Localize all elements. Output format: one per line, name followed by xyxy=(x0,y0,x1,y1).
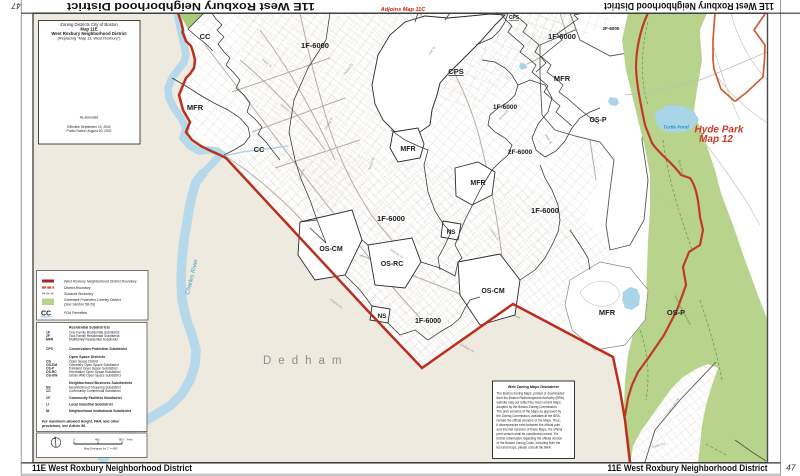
svg-text:MFR: MFR xyxy=(187,103,204,112)
svg-text:Web Zoning Maps Disclaimer: Web Zoning Maps Disclaimer xyxy=(508,385,560,389)
svg-text:and Internet versions of these: and Internet versions of these Maps, the… xyxy=(497,428,563,432)
svg-text:CC: CC xyxy=(254,145,265,154)
svg-text:District Boundary: District Boundary xyxy=(64,286,91,290)
svg-text:remain the official versions o: remain the official versions of the Maps… xyxy=(497,419,561,423)
svg-text:MFR: MFR xyxy=(599,308,616,317)
svg-text:2F-6000: 2F-6000 xyxy=(508,149,533,156)
svg-text:of the Boston Zoning Code, inc: of the Boston Zoning Code, including bot… xyxy=(497,441,561,445)
svg-text:website may not reflect the mo: website may not reflect the most current… xyxy=(497,401,562,405)
svg-text:Multifamily Residential Subdis: Multifamily Residential Subdistrict xyxy=(69,338,118,342)
svg-text:Public Notice: August 20, 2002: Public Notice: August 20, 2002 xyxy=(67,129,112,133)
svg-text:1F-6000: 1F-6000 xyxy=(531,206,559,215)
svg-text:OS-RC: OS-RC xyxy=(381,261,404,268)
svg-text:the Zoning Commission, availab: the Zoning Commission, available at the … xyxy=(497,414,561,418)
svg-text:800: 800 xyxy=(119,438,124,442)
svg-text:Community Facilities Subdistri: Community Facilities Subdistrict xyxy=(69,396,123,400)
svg-text:MFR: MFR xyxy=(46,338,54,342)
svg-text:Neighborhood Institutional Sub: Neighborhood Institutional Subdistrict xyxy=(69,409,132,413)
svg-text:NS: NS xyxy=(446,229,456,236)
svg-text:Neighborhood Business Subdistr: Neighborhood Business Subdistricts xyxy=(69,381,132,385)
svg-text:1F-6000: 1F-6000 xyxy=(548,32,576,41)
svg-text:NS: NS xyxy=(377,313,387,320)
svg-text:47: 47 xyxy=(11,1,21,11)
svg-text:OS-UW: OS-UW xyxy=(46,374,58,378)
svg-text:Adjoins Map 11C: Adjoins Map 11C xyxy=(380,7,427,13)
svg-text:CC: CC xyxy=(200,32,211,41)
svg-text:LI: LI xyxy=(46,402,49,406)
svg-text:from the Boston Redevelopment: from the Boston Redevelopment Authority … xyxy=(497,396,565,400)
svg-text:CPS: CPS xyxy=(448,67,463,76)
svg-text:OS-CM: OS-CM xyxy=(481,288,505,295)
svg-text:11E West Roxbury Neighborhood: 11E West Roxbury Neighborhood District xyxy=(32,463,192,473)
svg-text:NI: NI xyxy=(46,409,49,413)
svg-text:11E West Roxbury Neighborhood: 11E West Roxbury Neighborhood District xyxy=(604,0,774,12)
svg-text:47: 47 xyxy=(786,463,796,473)
svg-text:1F-6000: 1F-6000 xyxy=(301,41,329,50)
svg-text:11E West Roxbury Neighborhood: 11E West Roxbury Neighborhood District xyxy=(608,463,768,473)
svg-text:provisions, see Article 56.: provisions, see Article 56. xyxy=(42,424,86,428)
svg-text:CC: CC xyxy=(46,389,51,393)
svg-text:Community Commercial Subdistri: Community Commercial Subdistrict xyxy=(69,389,121,393)
svg-text:Residential Subdistricts: Residential Subdistricts xyxy=(69,326,110,330)
svg-text:adopted by the Boston Zoning C: adopted by the Boston Zoning Commission. xyxy=(497,405,558,409)
svg-text:OS-CM: OS-CM xyxy=(319,246,343,253)
svg-text:Dedham: Dedham xyxy=(263,355,348,367)
svg-text:2F-6000: 2F-6000 xyxy=(603,26,620,31)
svg-text:As amended: As amended xyxy=(80,116,99,120)
svg-text:Urban Wild Open Space Subdistr: Urban Wild Open Space Subdistrict xyxy=(69,374,121,378)
svg-text:(Replacing “Map 11, West Roxbu: (Replacing “Map 11, West Roxbury”) xyxy=(58,36,121,41)
svg-text:CPS: CPS xyxy=(46,347,54,351)
svg-text:Feet: Feet xyxy=(127,438,133,442)
svg-text:(See Section 58-26): (See Section 58-26) xyxy=(64,302,95,306)
svg-text:Local Industrial Subdistrict: Local Industrial Subdistrict xyxy=(69,402,114,406)
svg-text:Subarea Boundary: Subarea Boundary xyxy=(64,292,93,296)
svg-text:1F-6000: 1F-6000 xyxy=(377,214,405,223)
svg-text:Map Designed for 1” = 400’: Map Designed for 1” = 400’ xyxy=(84,447,118,451)
svg-text:CF: CF xyxy=(46,396,50,400)
svg-text:1F-6000: 1F-6000 xyxy=(415,318,441,325)
svg-text:West Roxbury Neighborhood Dist: West Roxbury Neighborhood District Bound… xyxy=(64,279,137,283)
svg-text:CPS: CPS xyxy=(509,15,520,21)
svg-text:PDA Permitted: PDA Permitted xyxy=(64,311,88,315)
svg-text:text and maps, please consult: text and maps, please consult the BRA. xyxy=(497,446,552,450)
svg-text:further information regarding: further information regarding the offici… xyxy=(497,437,563,441)
svg-text:if discrepancies exist between: if discrepancies exist between the offic… xyxy=(497,423,561,427)
svg-text:11E West Roxbury Neighborhood: 11E West Roxbury Neighborhood District xyxy=(67,0,315,12)
svg-text:print version shall be conside: print version shall be considered correc… xyxy=(497,432,559,436)
svg-text:The print versions of the Maps: The print versions of the Maps as approv… xyxy=(497,410,562,414)
svg-text:MFR: MFR xyxy=(554,74,571,83)
svg-text:OS-P: OS-P xyxy=(589,117,606,124)
svg-text:Turtle Pond: Turtle Pond xyxy=(663,125,689,130)
svg-text:400: 400 xyxy=(95,438,100,442)
svg-text:MFR: MFR xyxy=(470,180,485,187)
svg-text:Conservation Protection Subdis: Conservation Protection Subdistrict xyxy=(69,347,128,351)
svg-text:Map 12: Map 12 xyxy=(699,134,733,145)
svg-text:MFR: MFR xyxy=(400,146,415,153)
svg-text:The Boston Zoning Maps, printe: The Boston Zoning Maps, printed or downl… xyxy=(497,392,565,396)
